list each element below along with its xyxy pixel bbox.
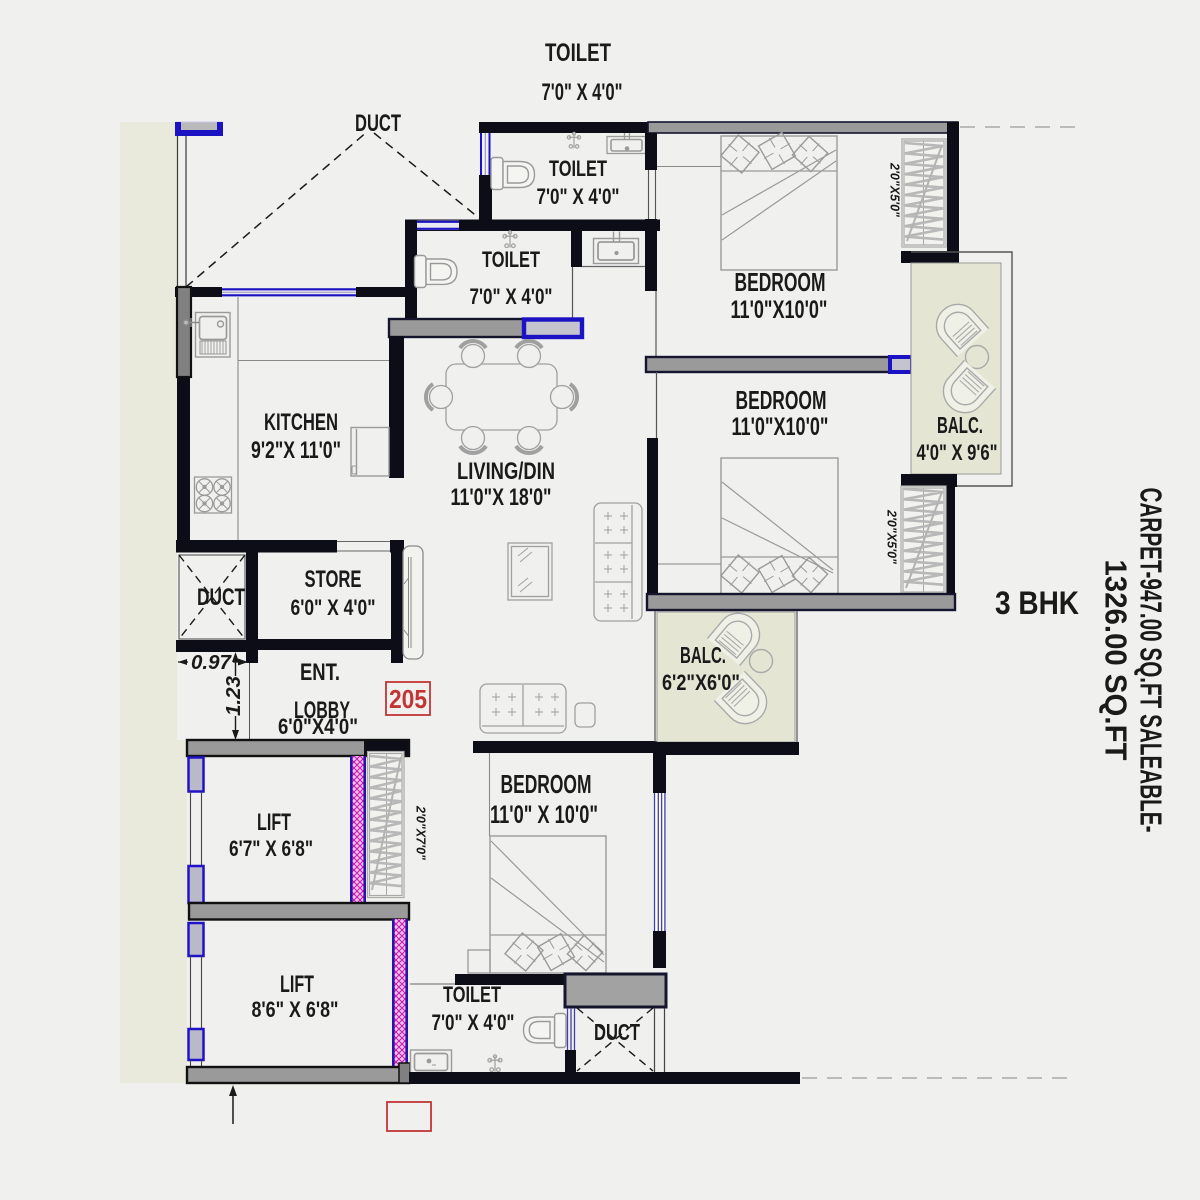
- svg-text:STORE: STORE: [305, 566, 362, 593]
- svg-text:TOILET: TOILET: [549, 156, 607, 181]
- svg-text:TOILET: TOILET: [482, 247, 540, 272]
- svg-text:3 BHK: 3 BHK: [995, 585, 1079, 621]
- svg-text:2'0"X5'0": 2'0"X5'0": [888, 162, 903, 218]
- svg-text:1.23: 1.23: [223, 676, 245, 716]
- svg-text:11'0" X 10'0": 11'0" X 10'0": [490, 801, 598, 829]
- svg-text:7'0" X 4'0": 7'0" X 4'0": [470, 284, 553, 309]
- svg-text:2'0"X5'0": 2'0"X5'0": [885, 509, 900, 565]
- svg-text:BEDROOM: BEDROOM: [501, 769, 592, 799]
- svg-text:LIVING/DIN: LIVING/DIN: [457, 458, 555, 485]
- svg-text:LIFT: LIFT: [280, 971, 314, 998]
- svg-text:6'0"X4'0": 6'0"X4'0": [278, 714, 358, 739]
- svg-text:7'0" X 4'0": 7'0" X 4'0": [537, 184, 620, 209]
- svg-text:6'7" X 6'8": 6'7" X 6'8": [229, 836, 313, 861]
- svg-text:BEDROOM: BEDROOM: [736, 385, 827, 415]
- svg-text:205: 205: [389, 684, 427, 714]
- svg-text:TOILET: TOILET: [545, 39, 611, 67]
- svg-text:BALC.: BALC.: [680, 642, 726, 668]
- svg-text:8'6" X 6'8": 8'6" X 6'8": [252, 997, 339, 1022]
- svg-text:BALC.: BALC.: [937, 412, 983, 438]
- svg-text:DUCT: DUCT: [197, 584, 245, 611]
- svg-text:BEDROOM: BEDROOM: [735, 267, 826, 297]
- svg-text:6'2"X6'0": 6'2"X6'0": [662, 670, 740, 695]
- svg-text:2'0"X7'0": 2'0"X7'0": [414, 805, 429, 861]
- svg-text:7'0" X 4'0": 7'0" X 4'0": [542, 79, 623, 106]
- svg-text:DUCT: DUCT: [355, 110, 401, 137]
- svg-text:9'2"X 11'0": 9'2"X 11'0": [251, 437, 341, 464]
- svg-text:4'0" X 9'6": 4'0" X 9'6": [917, 440, 998, 465]
- svg-text:CARPET-947.00 SQ.FT SALEABLE-: CARPET-947.00 SQ.FT SALEABLE-: [1134, 488, 1169, 833]
- svg-text:11'0"X10'0": 11'0"X10'0": [731, 296, 828, 324]
- svg-text:7'0" X 4'0": 7'0" X 4'0": [432, 1010, 515, 1035]
- svg-text:ENT.: ENT.: [300, 659, 340, 686]
- svg-text:11'0"X10'0": 11'0"X10'0": [732, 413, 829, 441]
- svg-text:LIFT: LIFT: [257, 809, 291, 836]
- svg-text:TOILET: TOILET: [443, 982, 501, 1007]
- svg-text:11'0"X 18'0": 11'0"X 18'0": [451, 484, 552, 511]
- svg-text:6'0" X 4'0": 6'0" X 4'0": [291, 595, 376, 620]
- svg-text:DUCT: DUCT: [594, 1019, 640, 1045]
- svg-text:0.97: 0.97: [191, 652, 232, 674]
- svg-text:1326.00 SQ.FT: 1326.00 SQ.FT: [1099, 560, 1134, 761]
- svg-text:KITCHEN: KITCHEN: [264, 409, 338, 436]
